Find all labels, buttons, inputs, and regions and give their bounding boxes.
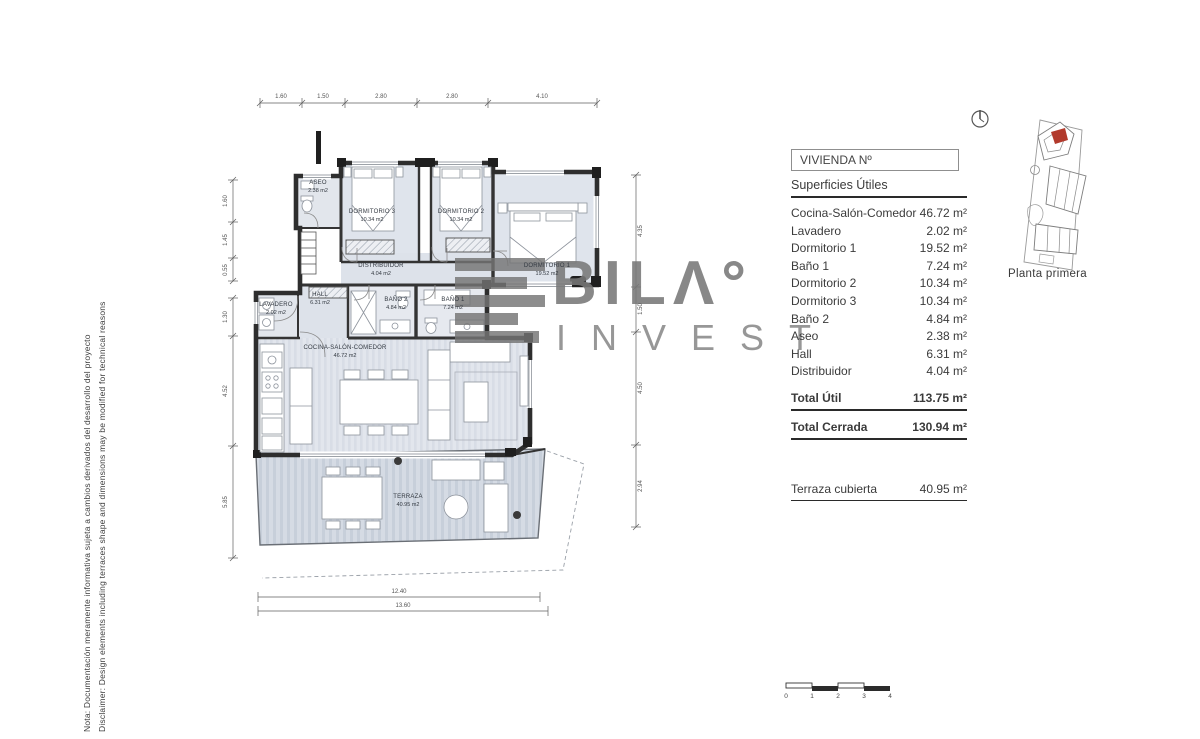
vivienda-title-box: VIVIENDA Nº (791, 149, 959, 171)
disclaimer-note-en: Disclaimer: Design elements including te… (97, 301, 107, 732)
dim-right-3: 2.94 (638, 480, 644, 492)
room-label-cocina-salon-comedor: COCINA-SALÓN-COMEDOR 46.72 m2 (303, 345, 386, 360)
surface-row: Baño 24.84 m² (791, 312, 967, 330)
scalebar-label-4: 4 (888, 693, 892, 700)
surface-row: Dormitorio 310.34 m² (791, 294, 967, 312)
surface-row: Dormitorio 119.52 m² (791, 241, 967, 259)
dim-right-0: 4.35 (638, 225, 644, 237)
installations-shaft (301, 232, 316, 274)
scalebar-label-0: 0 (784, 693, 788, 700)
room-label-aseo: ASEO 2.38 m2 (308, 180, 328, 195)
dim-top-3: 2.80 (446, 94, 458, 100)
site-plan (1024, 120, 1086, 270)
total-util-row: Total Útil113.75 m² (791, 391, 967, 409)
dim-top-2: 2.80 (375, 94, 387, 100)
dim-right-1: 1.50 (638, 303, 644, 315)
surface-row: Baño 17.24 m² (791, 259, 967, 277)
surface-row: Lavadero2.02 m² (791, 224, 967, 242)
scalebar-label-2: 2 (836, 693, 840, 700)
surface-row: Distribuidor4.04 m² (791, 364, 967, 382)
dim-left-1: 1.45 (223, 234, 229, 246)
plan-sheet: BILΛ° INVEST Nota: Documentación meramen… (0, 0, 1200, 739)
dim-top-1: 1.50 (317, 94, 329, 100)
surfaces-subtitle: Superficies Útiles (791, 178, 967, 196)
room-label-hall: HALL 6.31 m2 (310, 292, 330, 307)
disclaimer-note-es: Nota: Documentación meramente informativ… (82, 334, 92, 732)
dim-top-4: 4.10 (536, 94, 548, 100)
bila-wordmark: BILΛ° (552, 248, 753, 319)
dim-bottom-1: 13.60 (395, 603, 410, 609)
terraza-cubierta-row: Terraza cubierta40.95 m² (791, 482, 967, 500)
floorplan-drawing (0, 0, 1200, 739)
surfaces-panel: VIVIENDA Nº Superficies Útiles Cocina-Sa… (791, 149, 967, 501)
surface-row: Aseo2.38 m² (791, 329, 967, 347)
room-label-terraza: TERRAZA 40.95 m2 (393, 494, 422, 509)
scalebar-label-1: 1 (810, 693, 814, 700)
scale-bar (786, 683, 890, 691)
surface-row: Dormitorio 210.34 m² (791, 276, 967, 294)
dim-left-2: 0.55 (223, 264, 229, 276)
dim-left-4: 4.52 (223, 385, 229, 397)
scalebar-label-3: 3 (862, 693, 866, 700)
dim-bottom-0: 12.40 (391, 589, 406, 595)
surface-row: Hall6.31 m² (791, 347, 967, 365)
dim-left-0: 1.60 (223, 195, 229, 207)
room-label-dormitorio-2: DORMITORIO 2 10.34 m2 (438, 209, 484, 224)
room-label-bano-1: BAÑO 1 7.24 m2 (441, 297, 464, 312)
room-label-distribuidor: DISTRIBUIDOR 4.04 m2 (358, 263, 403, 278)
room-label-lavadero: LAVADERO 2.02 m2 (259, 302, 292, 317)
dim-left-3: 1.30 (223, 311, 229, 323)
surface-row: Cocina-Salón-Comedor46.72 m² (791, 206, 967, 224)
dim-right-2: 4.50 (638, 382, 644, 394)
dim-top-0: 1.60 (275, 94, 287, 100)
total-cerrada-row: Total Cerrada130.94 m² (791, 420, 967, 438)
site-plan-caption: Planta primera (1008, 268, 1087, 280)
north-compass-icon (972, 110, 988, 127)
dim-left-5: 5.85 (223, 496, 229, 508)
room-label-dormitorio-1: DORMITORIO 1 19.52 m2 (524, 263, 570, 278)
room-label-dormitorio-3: DORMITORIO 3 10.34 m2 (349, 209, 395, 224)
room-label-bano-2: BAÑO 2 4.84 m2 (384, 297, 407, 312)
